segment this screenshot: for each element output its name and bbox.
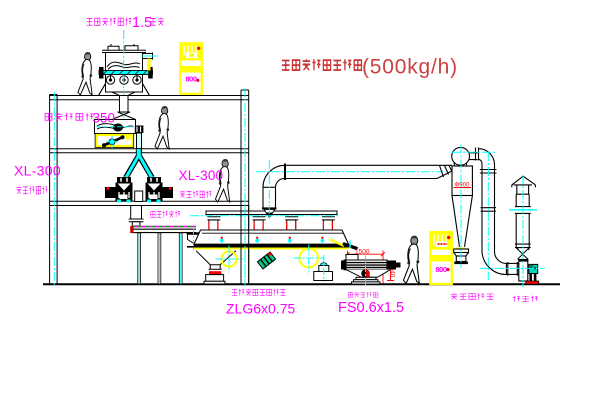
svg-text:XL-300: XL-300	[14, 163, 61, 179]
svg-text:1.5: 1.5	[132, 15, 152, 31]
svg-text:XL-300: XL-300	[179, 168, 224, 183]
svg-text:ZLG6x0.75: ZLG6x0.75	[226, 301, 295, 317]
svg-text:FS0.6x1.5: FS0.6x1.5	[338, 300, 404, 316]
svg-text:350: 350	[93, 111, 116, 126]
svg-text:(500kg/h): (500kg/h)	[362, 56, 458, 79]
svg-text:800: 800	[436, 265, 447, 274]
svg-text:Φ900: Φ900	[455, 183, 470, 189]
svg-text:800: 800	[186, 75, 197, 84]
